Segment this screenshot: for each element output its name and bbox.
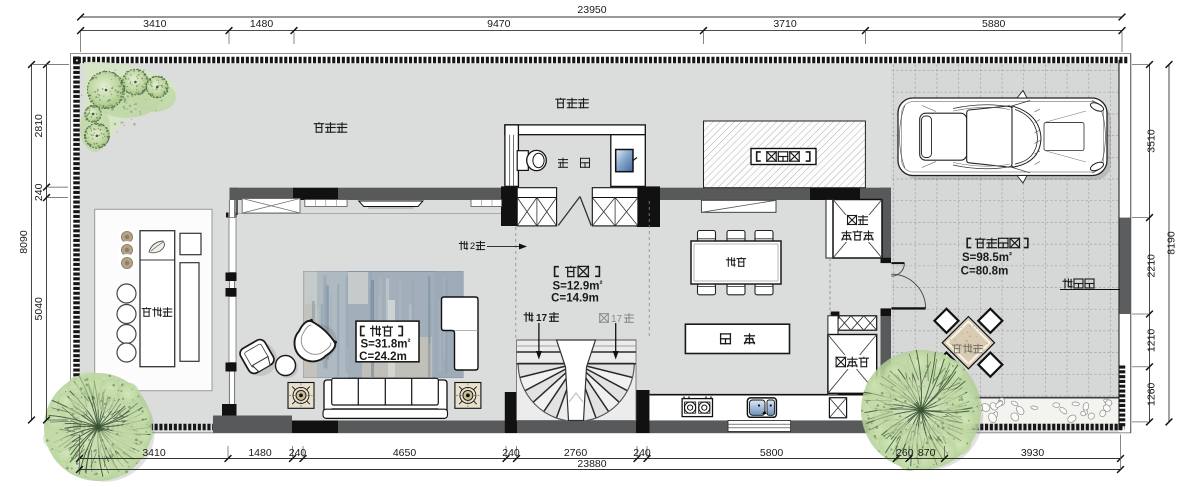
svg-text:3710: 3710: [773, 18, 797, 30]
svg-text:17: 17: [611, 314, 623, 325]
svg-text:870: 870: [918, 447, 936, 459]
svg-text:240: 240: [289, 447, 307, 459]
svg-text:3510: 3510: [1146, 129, 1158, 153]
svg-text:8190: 8190: [1166, 231, 1178, 255]
svg-text:5040: 5040: [33, 297, 45, 321]
svg-text:23950: 23950: [577, 4, 606, 16]
svg-text:S=98.5m: S=98.5m: [962, 252, 1009, 264]
svg-text:²: ²: [408, 337, 411, 347]
svg-text:2210: 2210: [1146, 254, 1158, 278]
svg-text:C=14.9m: C=14.9m: [551, 293, 599, 305]
svg-text:4650: 4650: [393, 447, 417, 459]
svg-text:C=80.8m: C=80.8m: [961, 266, 1009, 278]
svg-text:3930: 3930: [1021, 447, 1045, 459]
svg-text:240: 240: [502, 447, 520, 459]
svg-text:8090: 8090: [18, 230, 30, 254]
svg-text:1480: 1480: [250, 18, 274, 30]
svg-text:240: 240: [33, 183, 45, 201]
svg-text:1480: 1480: [248, 447, 272, 459]
svg-text:260: 260: [896, 447, 914, 459]
svg-text:9470: 9470: [487, 18, 511, 30]
svg-text:S=31.8m: S=31.8m: [361, 339, 408, 351]
svg-text:240: 240: [633, 447, 651, 459]
svg-text:1260: 1260: [1146, 382, 1158, 406]
svg-text:²: ²: [600, 279, 603, 289]
svg-text:3410: 3410: [143, 18, 167, 30]
svg-text:1210: 1210: [1146, 329, 1158, 353]
svg-text:C=24.2m: C=24.2m: [359, 351, 407, 363]
svg-text:2760: 2760: [564, 447, 588, 459]
svg-text:5800: 5800: [760, 447, 784, 459]
svg-text:2: 2: [470, 241, 475, 252]
svg-text:S=12.9m: S=12.9m: [553, 281, 600, 293]
svg-text:5880: 5880: [982, 18, 1006, 30]
svg-text:17: 17: [536, 313, 548, 324]
svg-text:2810: 2810: [33, 114, 45, 138]
svg-text:3410: 3410: [142, 447, 166, 459]
svg-text:23880: 23880: [577, 458, 606, 470]
svg-text:²: ²: [1009, 250, 1012, 260]
